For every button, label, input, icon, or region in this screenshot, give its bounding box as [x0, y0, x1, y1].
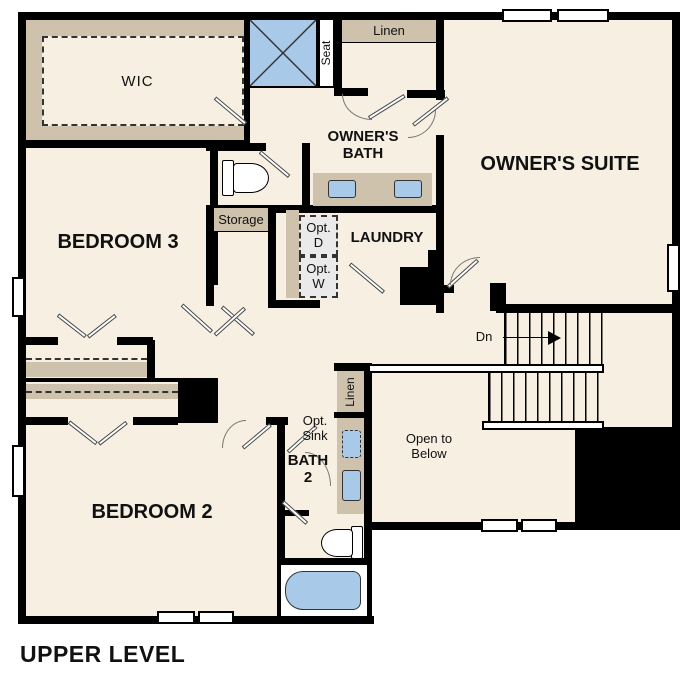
window-bedroom2-left — [12, 445, 25, 497]
wall-suite-left-upper — [436, 12, 444, 100]
wall-bedroom2-top-a — [18, 417, 68, 425]
stairs-mid-rail — [368, 364, 604, 373]
wic-label: WIC — [90, 72, 185, 92]
stairs-lower-flight — [488, 373, 603, 423]
stairs-down-label: Dn — [470, 329, 498, 345]
wall-closet-divider — [18, 378, 178, 382]
opt-sink-label: Opt. Sink — [294, 412, 336, 446]
owners-suite-label: OWNER'S SUITE — [480, 138, 640, 190]
window-open-below-1 — [481, 519, 518, 532]
window-bedroom3-left — [12, 277, 25, 317]
bath2-opt-sink — [342, 430, 361, 458]
owners-sink-1 — [328, 180, 356, 198]
laundry-label: LAUNDRY — [344, 228, 430, 248]
wall-closet1-right — [147, 340, 155, 382]
stairs-down-arrow-line — [503, 337, 551, 338]
storage-label: Storage — [210, 209, 272, 231]
bath2-sink — [342, 470, 361, 501]
stairs-bottom-rail — [482, 421, 604, 430]
window-suite-top-1 — [502, 9, 552, 22]
chase-bottom-right — [575, 427, 674, 526]
linen2-label: Linen — [331, 373, 371, 411]
wall-suite-bottom — [496, 304, 680, 313]
wall-linen2-top — [334, 363, 372, 371]
wall-left — [18, 12, 26, 624]
closet-b2-shelf-dash — [26, 391, 178, 393]
wall-bedroom2-top-b — [133, 417, 178, 425]
bath2-label: BATH 2 — [282, 450, 334, 490]
floor-plan: Seat Linen Storage Opt. D Opt. W Dn Line… — [0, 0, 687, 687]
plan-title: UPPER LEVEL — [20, 642, 240, 668]
closet-b3-shelf — [26, 362, 147, 377]
window-bedroom2-bottom-2 — [198, 611, 234, 624]
bath2-toilet-bowl — [321, 529, 353, 557]
wall-wc-right — [302, 143, 310, 209]
linen-upper-label: Linen — [342, 21, 436, 41]
window-suite-right — [667, 244, 680, 292]
wall-bedroom3-bottom-a — [18, 337, 58, 345]
wall-laundry-bottom — [268, 300, 320, 308]
closet-b3-shelf-dash — [26, 358, 147, 360]
wall-column-hall — [428, 250, 444, 293]
chase-closet — [178, 378, 218, 423]
window-bedroom2-bottom-1 — [157, 611, 195, 624]
wall-suite-bottom-step — [490, 283, 506, 311]
window-open-below-2 — [521, 519, 557, 532]
open-to-below-label: Open to Below — [398, 422, 460, 472]
laundry-counter — [286, 210, 299, 298]
owners-toilet-bowl — [233, 163, 269, 193]
opt-washer-label: Opt. W — [300, 258, 337, 296]
bedroom2-label: BEDROOM 2 — [72, 500, 232, 524]
owners-bath-label: OWNER'S BATH — [318, 126, 408, 166]
bath2-tub — [285, 571, 361, 610]
owners-sink-2 — [394, 180, 422, 198]
bedroom3-label: BEDROOM 3 — [38, 230, 198, 254]
stairs-down-arrow-head — [548, 331, 561, 345]
window-suite-top-2 — [557, 9, 609, 22]
opt-dryer-label: Opt. D — [300, 217, 337, 255]
